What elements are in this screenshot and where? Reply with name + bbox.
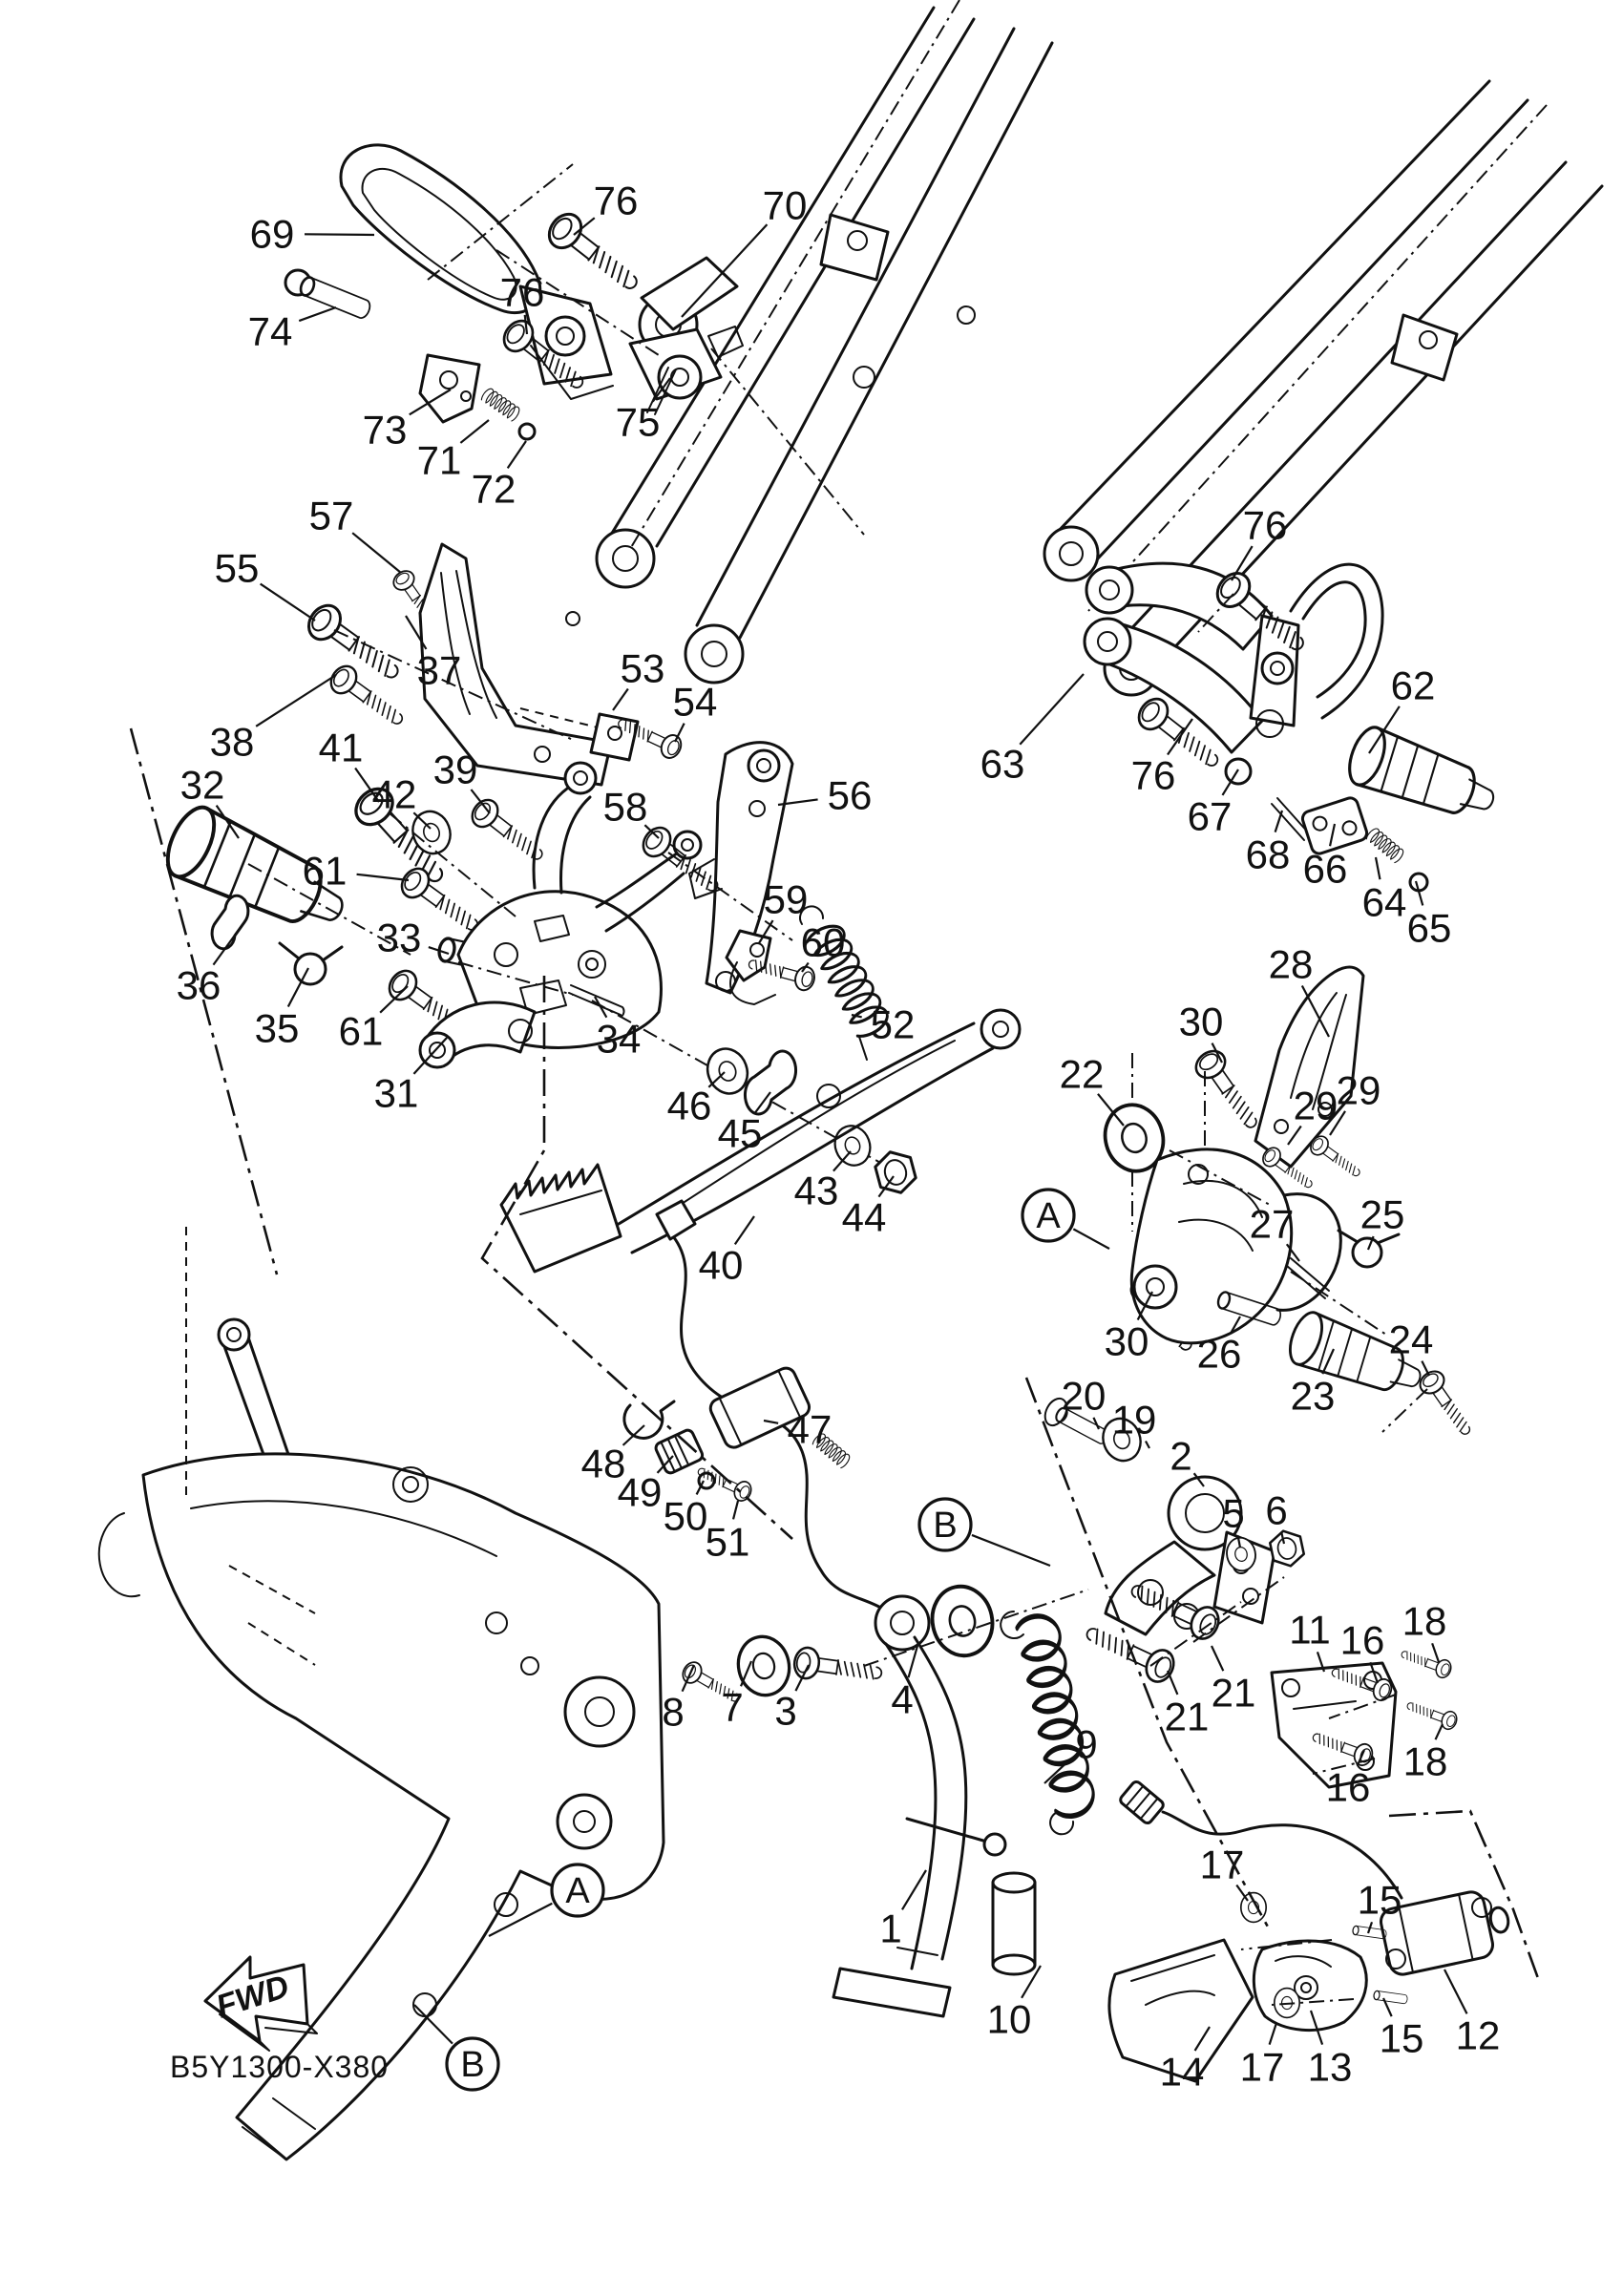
- part-label-62: 62: [1391, 664, 1436, 708]
- part-label-21: 21: [1212, 1671, 1256, 1716]
- part-label-35: 35: [255, 1006, 300, 1051]
- part-label-8: 8: [662, 1690, 684, 1735]
- ref-marker-label-A: A: [1036, 1196, 1061, 1236]
- parts-diagram-page: 6974737172767670755755383741423932613635…: [0, 0, 1623, 2296]
- leader-line-74-1: [299, 307, 336, 321]
- part-label-66: 66: [1303, 847, 1348, 892]
- ref-leader-A-0: [1073, 1229, 1109, 1249]
- part-label-29: 29: [1294, 1084, 1338, 1128]
- part-label-26: 26: [1197, 1332, 1242, 1377]
- part-label-41: 41: [319, 726, 364, 770]
- leader-line-57-9: [352, 533, 401, 573]
- part-label-73: 73: [363, 408, 408, 453]
- part-label-71: 71: [417, 438, 462, 483]
- part-label-29: 29: [1337, 1068, 1381, 1113]
- part-label-53: 53: [621, 646, 665, 691]
- part-label-22: 22: [1060, 1052, 1105, 1097]
- leader-line-19-62: [1146, 1441, 1149, 1448]
- part-label-7: 7: [721, 1685, 743, 1730]
- part-label-19: 19: [1112, 1398, 1157, 1443]
- part-label-1: 1: [879, 1906, 901, 1951]
- leader-line-17-83: [1270, 2023, 1276, 2045]
- part-label-12: 12: [1456, 2013, 1501, 2058]
- part-label-70: 70: [763, 183, 808, 228]
- side-stand-group: [833, 1596, 1097, 2016]
- part-label-49: 49: [618, 1470, 663, 1515]
- main-frame: [99, 1227, 664, 2159]
- diagram-code: B5Y1300-X380: [170, 2050, 389, 2084]
- part-label-54: 54: [673, 680, 718, 725]
- part-label-63: 63: [980, 742, 1025, 787]
- part-label-65: 65: [1407, 906, 1452, 951]
- part-label-10: 10: [987, 1997, 1032, 2042]
- leader-line-63-42: [1020, 674, 1084, 745]
- part-label-60: 60: [801, 920, 846, 965]
- part-label-40: 40: [699, 1243, 744, 1288]
- part-label-21: 21: [1165, 1695, 1210, 1739]
- part-label-61: 61: [339, 1009, 384, 1054]
- part-label-16: 16: [1340, 1618, 1385, 1663]
- part-label-56: 56: [828, 773, 873, 818]
- brake-switch-harness-group: [624, 1201, 897, 1623]
- ref-leader-B-1: [972, 1535, 1050, 1566]
- part-label-52: 52: [871, 1002, 916, 1047]
- part-label-9: 9: [1075, 1722, 1097, 1767]
- leader-line-72-4: [508, 441, 526, 468]
- part-label-33: 33: [377, 916, 422, 960]
- leader-line-69-0: [305, 234, 374, 235]
- part-label-17: 17: [1240, 2045, 1285, 2090]
- leader-line-12-86: [1444, 1970, 1467, 2013]
- part-label-37: 37: [417, 648, 462, 693]
- leader-line-18-70: [1432, 1643, 1439, 1662]
- part-label-20: 20: [1062, 1374, 1107, 1419]
- ref-marker-label-B: B: [933, 1506, 957, 1546]
- part-label-4: 4: [891, 1677, 913, 1722]
- part-label-45: 45: [718, 1111, 763, 1156]
- part-label-30: 30: [1105, 1319, 1149, 1364]
- ref-marker-label-B: B: [460, 2045, 484, 2085]
- part-label-17: 17: [1200, 1843, 1245, 1887]
- leader-line-1-78: [902, 1870, 926, 1909]
- leader-line-17-80: [1236, 1885, 1248, 1901]
- part-label-55: 55: [215, 546, 260, 591]
- part-label-42: 42: [372, 772, 417, 817]
- part-label-75: 75: [616, 400, 661, 445]
- part-label-76: 76: [1131, 753, 1176, 798]
- leader-line-21-66: [1212, 1646, 1223, 1671]
- part-label-11: 11: [1289, 1608, 1331, 1653]
- part-label-68: 68: [1246, 832, 1291, 877]
- parts-diagram-canvas: 6974737172767670755755383741423932613635…: [0, 0, 1623, 2296]
- part-label-30: 30: [1179, 1000, 1224, 1044]
- part-label-16: 16: [1326, 1765, 1371, 1810]
- part-label-76: 76: [1243, 503, 1288, 548]
- part-label-38: 38: [210, 720, 255, 765]
- leader-line-68-46: [1275, 811, 1282, 832]
- part-label-18: 18: [1403, 1739, 1448, 1784]
- part-label-32: 32: [180, 763, 225, 808]
- part-label-18: 18: [1402, 1599, 1447, 1644]
- leader-line-65-49: [1416, 881, 1423, 905]
- leader-line-4-76: [909, 1646, 917, 1677]
- part-label-47: 47: [788, 1407, 833, 1452]
- leader-line-64-48: [1376, 857, 1380, 879]
- part-label-27: 27: [1250, 1202, 1295, 1247]
- part-label-5: 5: [1222, 1491, 1244, 1536]
- part-label-67: 67: [1188, 794, 1233, 839]
- part-label-69: 69: [250, 212, 295, 257]
- part-label-14: 14: [1160, 2050, 1205, 2095]
- part-label-64: 64: [1362, 880, 1407, 925]
- leader-line-35-19: [288, 968, 308, 1006]
- part-label-44: 44: [842, 1195, 887, 1240]
- part-label-72: 72: [472, 467, 516, 512]
- part-label-61: 61: [303, 849, 348, 894]
- leader-line-55-10: [261, 584, 315, 621]
- part-label-36: 36: [177, 963, 221, 1008]
- leader-line-53-23: [613, 688, 628, 710]
- leader-line-51-40: [733, 1501, 738, 1519]
- part-label-39: 39: [433, 748, 478, 792]
- part-label-15: 15: [1380, 2016, 1424, 2061]
- part-label-74: 74: [248, 309, 293, 354]
- part-label-15: 15: [1358, 1878, 1402, 1923]
- part-label-76: 76: [594, 179, 639, 223]
- part-label-13: 13: [1308, 2045, 1353, 2090]
- part-label-76: 76: [500, 270, 545, 315]
- part-label-58: 58: [603, 785, 648, 830]
- part-label-2: 2: [1170, 1434, 1191, 1479]
- part-label-34: 34: [597, 1017, 642, 1062]
- part-label-23: 23: [1291, 1374, 1336, 1419]
- part-label-46: 46: [667, 1084, 712, 1128]
- leader-line-38-11: [256, 675, 336, 727]
- part-label-59: 59: [764, 877, 809, 922]
- ref-marker-label-A: A: [565, 1871, 590, 1911]
- part-label-51: 51: [706, 1520, 750, 1565]
- part-label-31: 31: [374, 1071, 419, 1116]
- part-label-50: 50: [664, 1494, 708, 1539]
- part-label-24: 24: [1389, 1317, 1434, 1362]
- part-label-43: 43: [794, 1169, 839, 1213]
- leader-line-61-17: [357, 874, 409, 880]
- leader-line-21-67: [1168, 1671, 1177, 1695]
- part-label-28: 28: [1269, 942, 1314, 987]
- part-label-25: 25: [1360, 1192, 1405, 1237]
- leader-line-18-72: [1436, 1724, 1443, 1739]
- part-label-57: 57: [309, 494, 354, 538]
- leader-line-71-3: [460, 420, 489, 443]
- leader-line-40-35: [735, 1216, 754, 1244]
- stand-bracket-group: [680, 1395, 1306, 1709]
- part-label-3: 3: [774, 1689, 796, 1734]
- part-label-6: 6: [1265, 1488, 1287, 1533]
